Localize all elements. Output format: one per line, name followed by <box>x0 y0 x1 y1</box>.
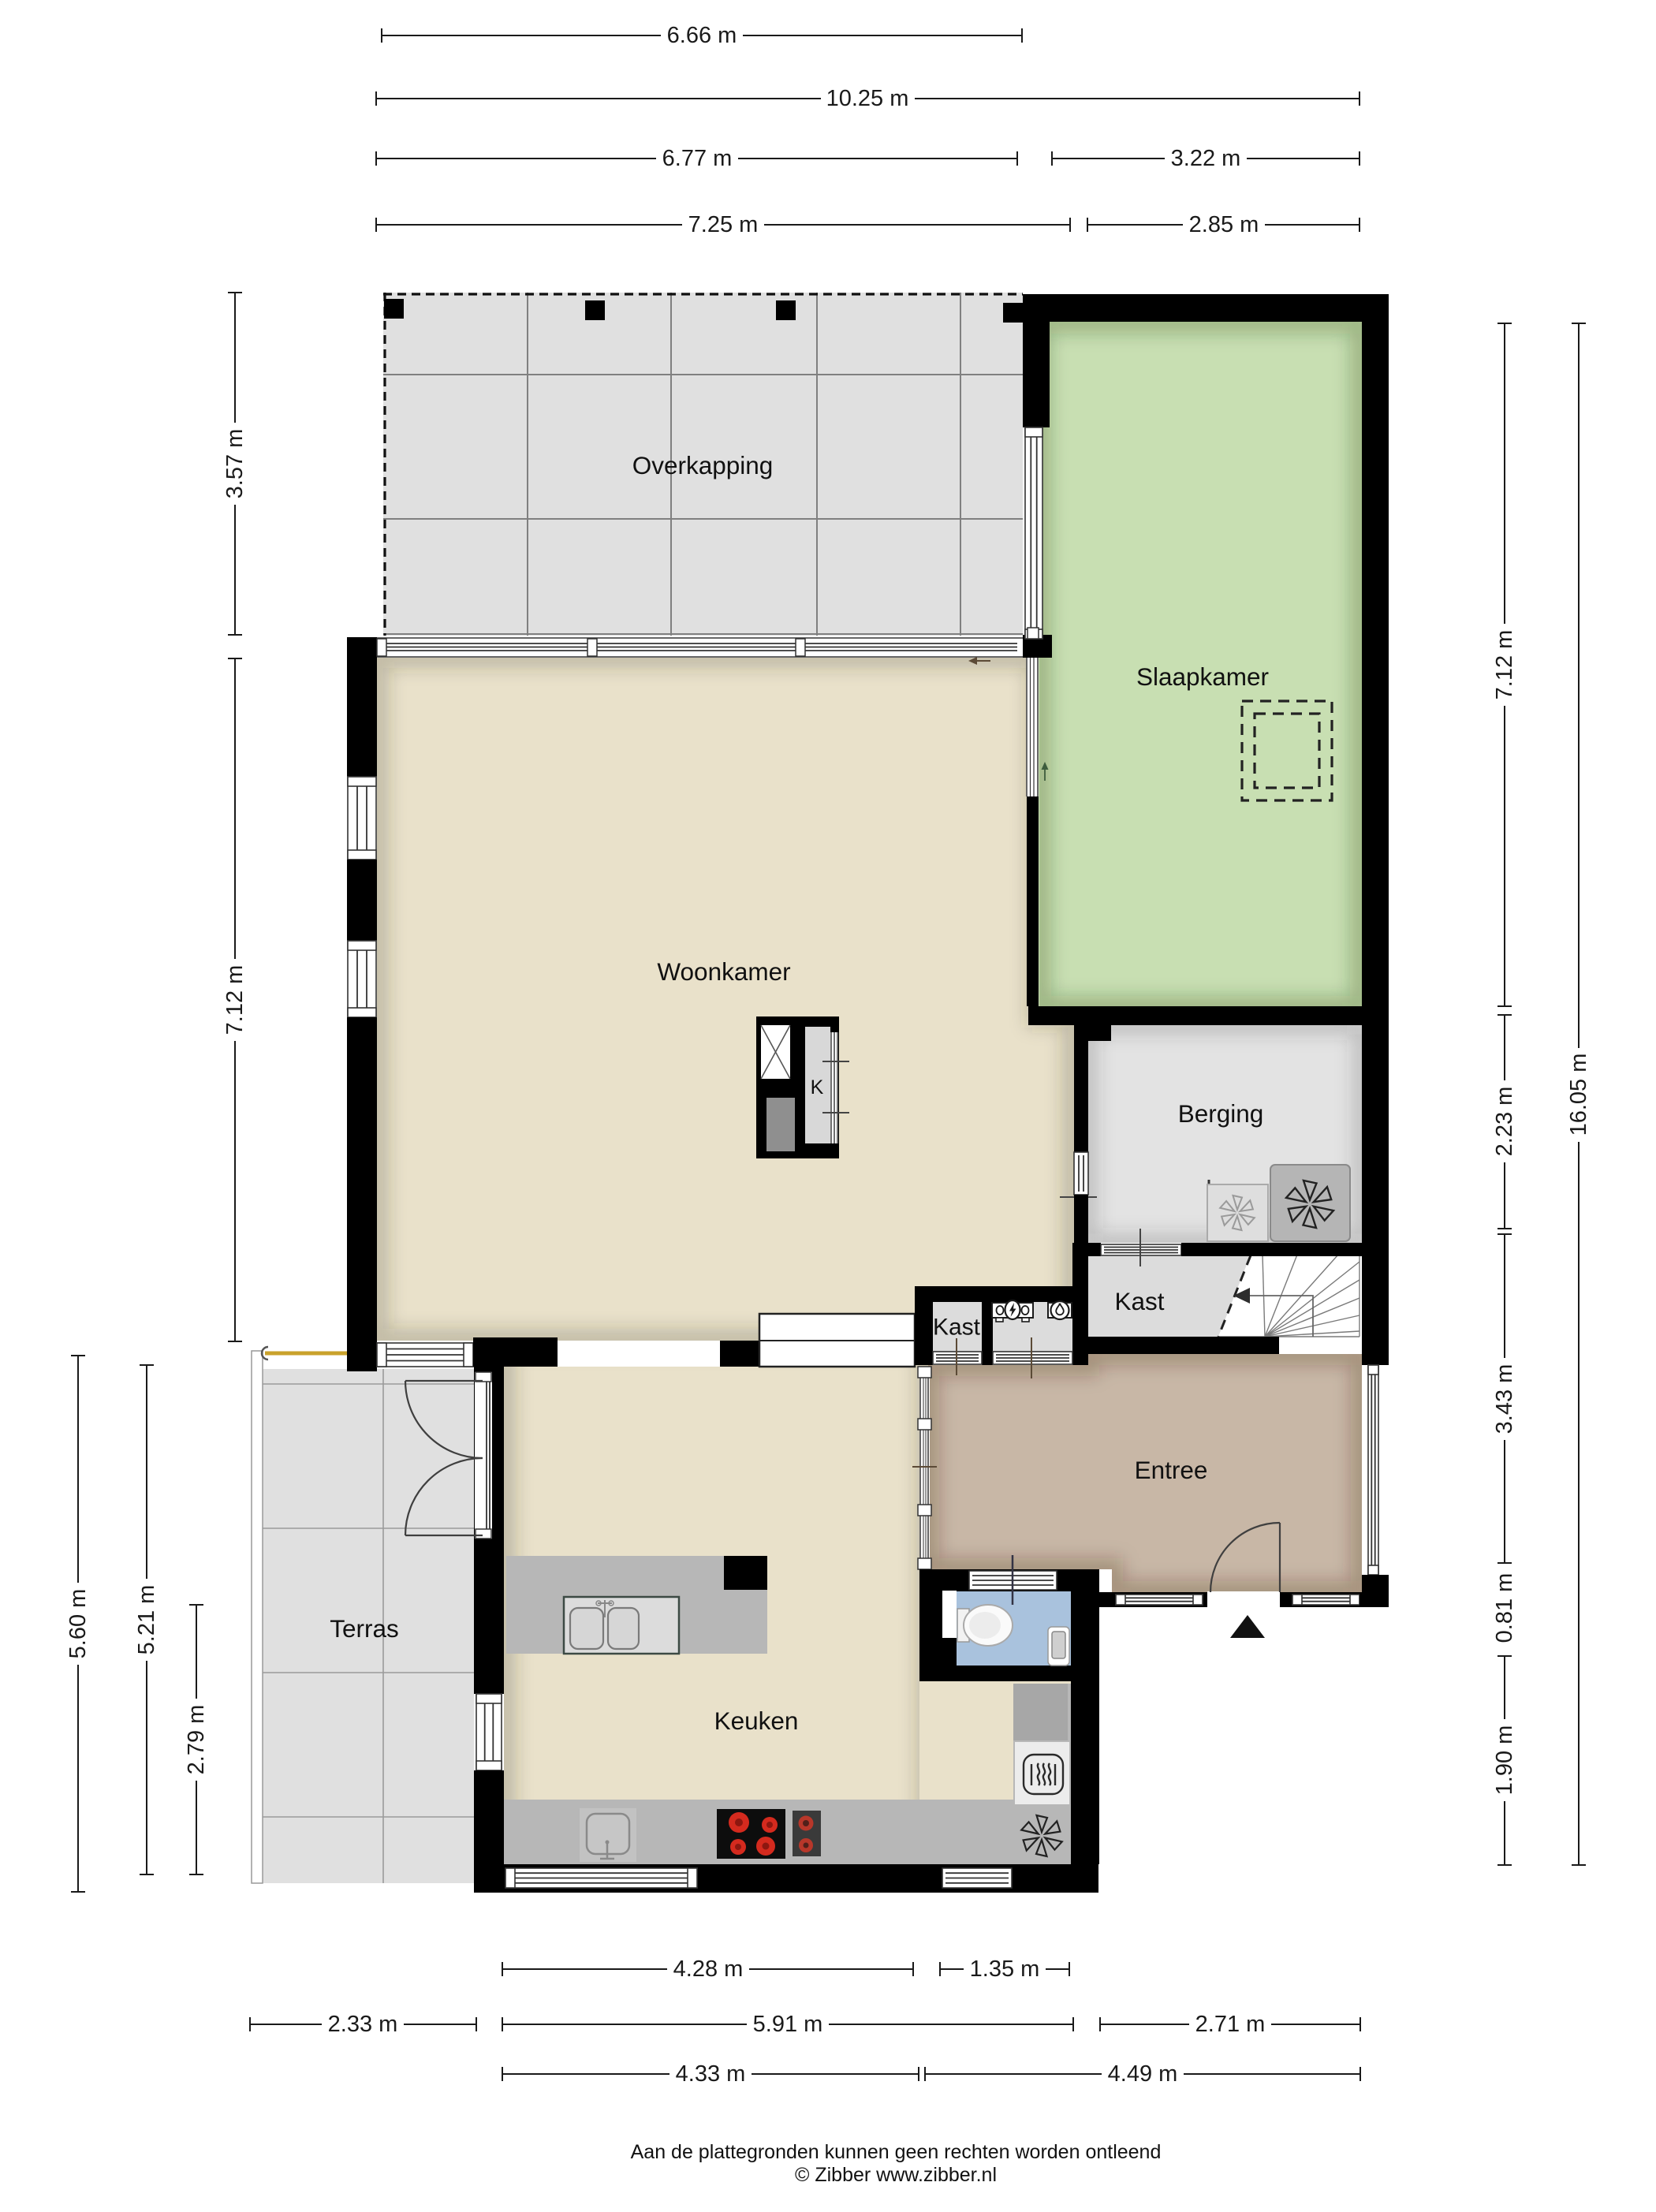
svg-text:Overkapping: Overkapping <box>632 451 774 479</box>
svg-text:5.60 m: 5.60 m <box>65 1589 91 1659</box>
svg-text:2.33 m: 2.33 m <box>328 2012 398 2037</box>
svg-text:© Zibber www.zibber.nl: © Zibber www.zibber.nl <box>795 2164 997 2186</box>
svg-text:Keuken: Keuken <box>714 1707 799 1735</box>
svg-text:4.28 m: 4.28 m <box>673 1956 744 1982</box>
svg-text:Berging: Berging <box>1178 1099 1264 1128</box>
svg-text:Kast: Kast <box>1114 1287 1164 1315</box>
svg-text:4.33 m: 4.33 m <box>676 2061 746 2087</box>
svg-text:10.25 m: 10.25 m <box>826 86 909 111</box>
svg-text:6.77 m: 6.77 m <box>662 146 733 171</box>
svg-text:Entree: Entree <box>1135 1456 1208 1484</box>
svg-text:2.79 m: 2.79 m <box>184 1705 209 1775</box>
svg-text:7.12 m: 7.12 m <box>222 965 248 1035</box>
svg-text:3.22 m: 3.22 m <box>1171 146 1241 171</box>
svg-text:2.71 m: 2.71 m <box>1195 2012 1266 2037</box>
svg-text:5.91 m: 5.91 m <box>753 2012 823 2037</box>
svg-text:1.90 m: 1.90 m <box>1492 1725 1517 1796</box>
svg-text:2.85 m: 2.85 m <box>1189 212 1259 237</box>
svg-text:5.21 m: 5.21 m <box>134 1585 159 1655</box>
svg-text:Terras: Terras <box>330 1614 399 1643</box>
svg-text:3.57 m: 3.57 m <box>222 429 248 499</box>
svg-text:3.43 m: 3.43 m <box>1492 1364 1517 1434</box>
svg-text:K: K <box>811 1076 824 1099</box>
svg-text:0.81 m: 0.81 m <box>1492 1573 1517 1643</box>
svg-text:Kast: Kast <box>933 1315 981 1341</box>
svg-text:6.66 m: 6.66 m <box>667 23 737 48</box>
svg-text:Aan de plattegronden kunnen ge: Aan de plattegronden kunnen geen rechten… <box>631 2141 1162 2163</box>
svg-text:7.25 m: 7.25 m <box>688 212 759 237</box>
svg-text:4.49 m: 4.49 m <box>1108 2061 1178 2087</box>
svg-text:Slaapkamer: Slaapkamer <box>1136 662 1269 691</box>
svg-text:7.12 m: 7.12 m <box>1492 630 1517 700</box>
svg-text:16.05 m: 16.05 m <box>1566 1054 1591 1136</box>
svg-text:1.35 m: 1.35 m <box>970 1956 1040 1982</box>
svg-text:2.23 m: 2.23 m <box>1492 1087 1517 1157</box>
svg-text:Woonkamer: Woonkamer <box>657 957 790 986</box>
